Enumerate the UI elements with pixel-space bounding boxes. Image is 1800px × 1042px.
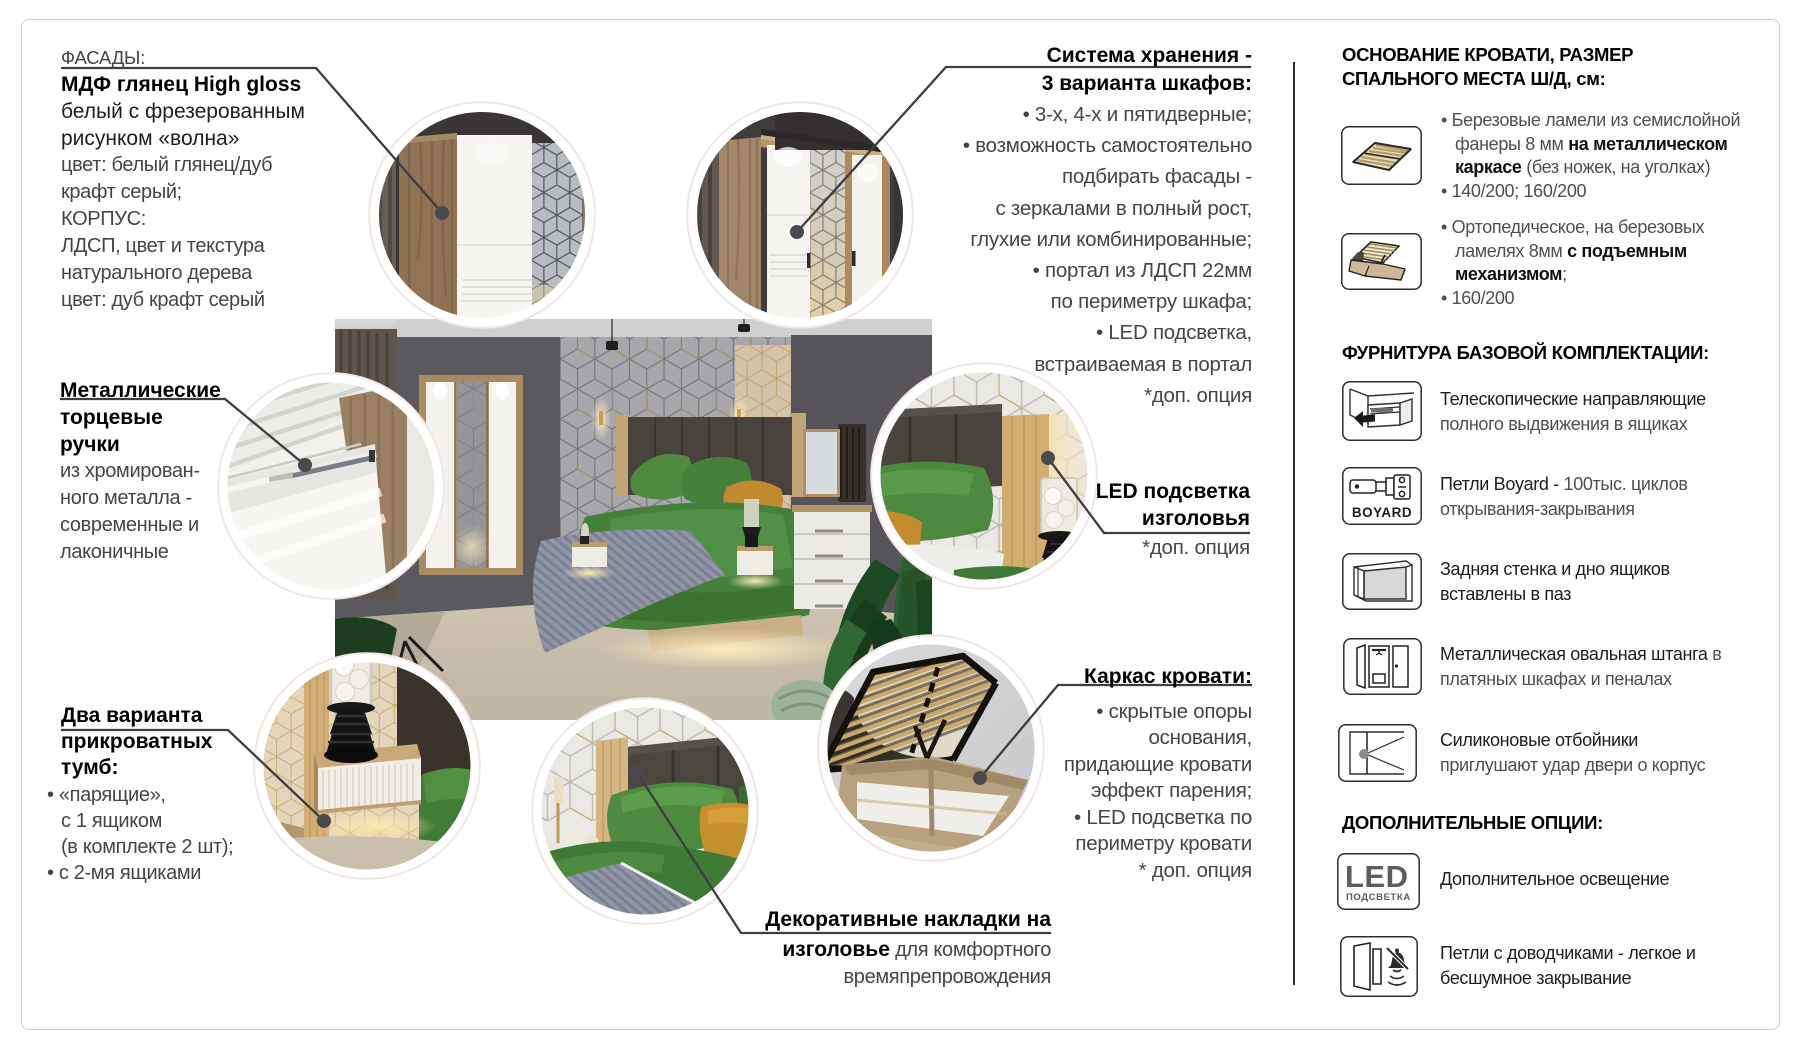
svg-text:BOYARD: BOYARD: [1352, 505, 1412, 520]
svg-text:LED: LED: [1345, 859, 1409, 894]
svg-text:ПОДСВЕТКА: ПОДСВЕТКА: [1346, 892, 1411, 903]
